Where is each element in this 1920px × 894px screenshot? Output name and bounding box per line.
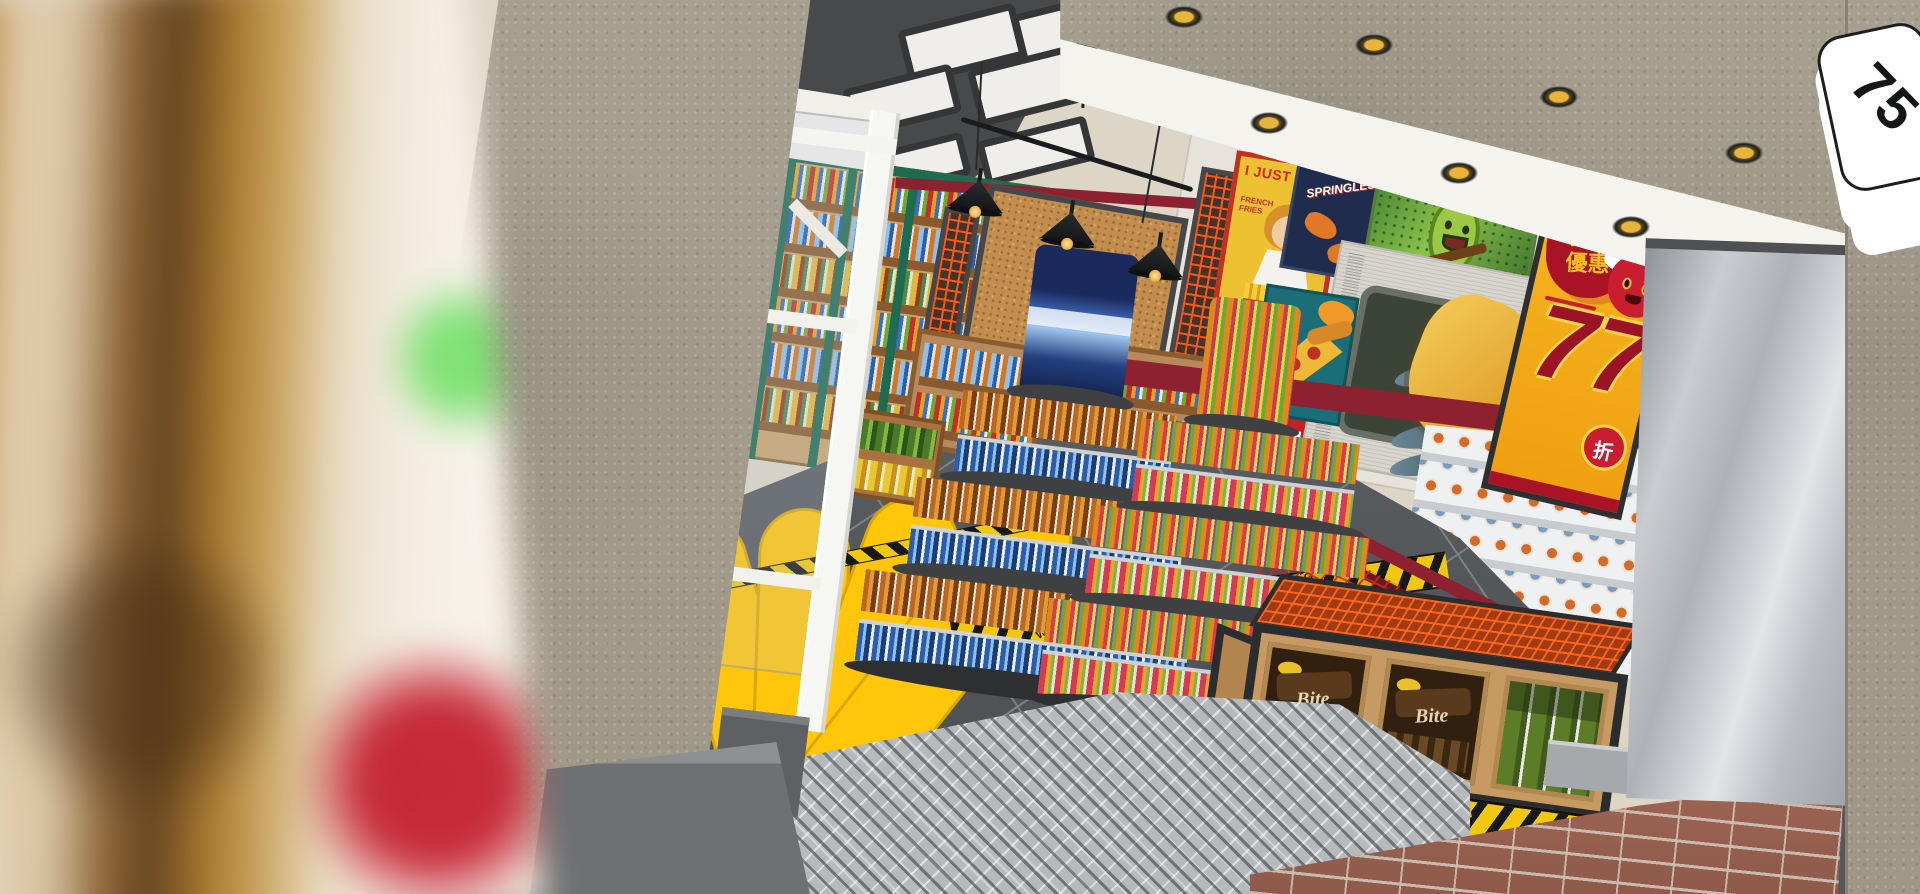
recessed-downlight <box>1440 162 1478 184</box>
store-render-scene: I JUST LOVE FRENCH FRIES SPRINGLES crunc… <box>0 0 1920 894</box>
recessed-downlight <box>1540 86 1578 108</box>
discount-unit-circle: 折 <box>1576 420 1631 475</box>
recessed-downlight <box>1250 112 1288 134</box>
bite-brand-wordmark: Bite <box>1384 704 1479 730</box>
tower-top-cylinder <box>1196 295 1303 431</box>
recessed-downlight <box>1725 142 1763 164</box>
blurred-foreground-storefront <box>0 0 545 894</box>
chip-graphic <box>1301 208 1341 243</box>
discount-unit: 折 <box>1581 431 1626 468</box>
recessed-downlight <box>1355 34 1393 56</box>
recessed-downlight <box>1165 6 1203 28</box>
stainless-steel-column <box>1626 238 1870 806</box>
recessed-downlight <box>1612 216 1650 238</box>
sign-digits: 75 <box>1826 39 1920 157</box>
